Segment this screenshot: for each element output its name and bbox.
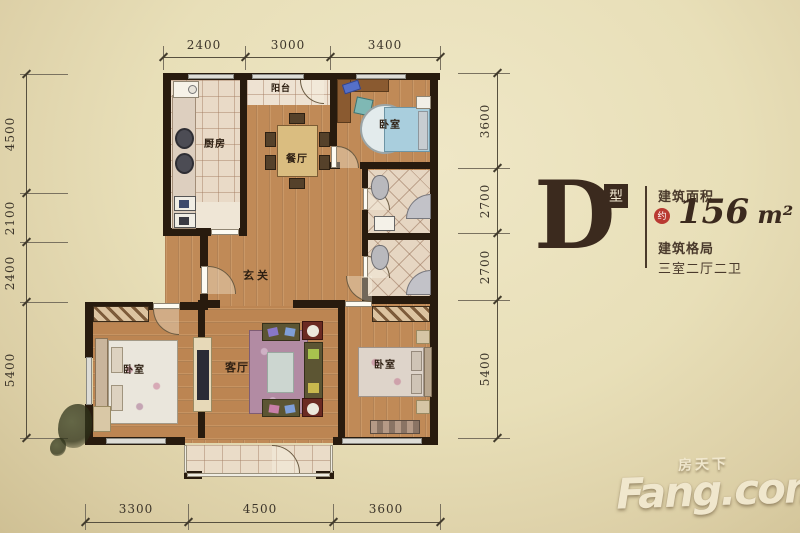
dim-label-left-2: 2100 (3, 196, 17, 240)
bed-pillow (111, 385, 123, 411)
kitchen-appliance (174, 213, 196, 228)
bed-pillow (411, 351, 422, 371)
wall-bedroomBR-left (338, 300, 345, 438)
dim-label-left-1: 4500 (3, 112, 17, 156)
dim-ext (188, 504, 189, 530)
bed-pillows (418, 111, 428, 150)
tv-stand (193, 337, 212, 412)
toilet-bath2 (371, 245, 389, 270)
dim-line-left (26, 74, 27, 438)
entrance-door (201, 266, 208, 294)
dim-label-bottom-1: 3300 (114, 502, 158, 516)
appliance-panel (179, 217, 189, 225)
room-label-balcony-top: 阳台 (271, 81, 291, 94)
toilet-bath1 (371, 175, 389, 200)
bed-bedroomBL (108, 340, 178, 424)
bed-headboard-BR (424, 347, 432, 397)
balcony-side-wall (330, 445, 333, 473)
dim-label-left-3: 2400 (3, 251, 17, 295)
sofa (304, 342, 323, 402)
area-unit: m² (749, 200, 793, 229)
tv (197, 350, 209, 400)
layout-value: 三室二厅二卫 (658, 258, 742, 277)
floor-balcony-bottom (186, 445, 332, 475)
wall-bath-divider (362, 233, 437, 240)
room-label-kitchen: 厨房 (204, 135, 226, 150)
side-table-bottom (302, 398, 323, 417)
dim-ext (458, 73, 510, 74)
wall-bedroomTR-left (330, 73, 337, 146)
dim-line-top (163, 57, 440, 58)
wall-bath2-left-a (362, 240, 368, 256)
dining-chair (289, 113, 305, 124)
dim-line-right (497, 73, 498, 438)
room-label-hallway: 玄关 (243, 267, 271, 283)
room-label-bedroomBR: 卧室 (374, 356, 396, 371)
dim-label-top-2: 3000 (266, 38, 310, 52)
approx-badge: 约 (654, 208, 670, 224)
wall-hall-living-right (293, 300, 340, 308)
pillow (284, 327, 295, 337)
kitchen-door (211, 229, 239, 235)
rug-center (267, 352, 294, 393)
lamp (307, 325, 319, 337)
window-bedroomBL-left (86, 357, 92, 405)
dining-chair (319, 132, 330, 147)
info-divider (645, 186, 647, 268)
wall-bath1-left-a (362, 169, 368, 188)
bed-pillow (411, 374, 422, 394)
wall-hall-left-upper (200, 228, 208, 268)
closet-bedroomBR (372, 306, 430, 322)
floor-plan-image: 2400 3000 3400 4500 2100 2400 5400 3600 … (0, 0, 800, 533)
dim-label-right-4: 5400 (478, 347, 492, 391)
stove-burner (175, 153, 194, 174)
room-label-bedroomBL: 卧室 (123, 361, 145, 376)
appliance-panel (179, 200, 189, 208)
plant-decoration (50, 438, 66, 456)
dim-label-top-3: 3400 (363, 38, 407, 52)
area-number: 156 (678, 192, 749, 232)
layout-label: 建筑格局 (658, 238, 714, 257)
dim-label-bottom-2: 4500 (238, 502, 282, 516)
room-label-dining: 餐厅 (286, 150, 308, 165)
sink-basin (188, 85, 197, 94)
dim-ext (458, 300, 510, 301)
wall-outer-left-upper (85, 302, 93, 358)
bench-bedroomBR (370, 420, 420, 434)
wardrobe-bedroomBL (93, 306, 149, 322)
dim-line-bottom (85, 522, 440, 523)
dim-label-right-3: 2700 (478, 245, 492, 289)
armchair-bottom (262, 399, 300, 417)
dim-label-left-4: 5400 (3, 348, 17, 392)
side-table-top (302, 321, 323, 340)
dining-chair (265, 132, 276, 147)
dim-ext (458, 233, 510, 234)
unit-type-badge: 型 (604, 184, 628, 208)
kitchen-sink-unit (173, 81, 199, 98)
dim-label-top-1: 2400 (182, 38, 226, 52)
balcony-front-glazing (187, 473, 330, 477)
kitchen-appliance (174, 196, 196, 211)
wall-bath2-bottom (362, 296, 437, 304)
armchair-top (262, 323, 300, 341)
nightstand (416, 330, 430, 344)
dim-label-right-2: 2700 (478, 179, 492, 223)
dim-ext (85, 504, 86, 530)
dining-chair (265, 155, 276, 170)
room-label-living: 客厅 (225, 359, 249, 375)
bed-bedroomBR (358, 347, 424, 397)
dim-ext (458, 168, 510, 169)
pillow (267, 327, 278, 337)
balcony-side-wall (184, 445, 187, 473)
fang-watermark-logo: Fang.com (615, 462, 800, 518)
dim-ext (440, 504, 441, 530)
nightstand (416, 400, 430, 414)
wall-kitchen-right (240, 73, 247, 236)
room-label-bedroomTR: 卧室 (379, 116, 401, 131)
pillow (268, 404, 279, 413)
bedroomBR-door (345, 301, 372, 307)
fang-watermark: 房天下 Fang.com (616, 452, 800, 532)
nightstand (416, 96, 431, 109)
wall-kitchen-left (163, 73, 171, 235)
stove-burner (175, 128, 194, 149)
pillow (284, 404, 295, 414)
area-value: 156 m² (678, 192, 793, 232)
dim-label-right-1: 3600 (478, 99, 492, 143)
dim-ext (458, 438, 510, 439)
lamp (307, 403, 319, 415)
dresser-bedroomBL (93, 406, 111, 432)
window-kitchen (188, 74, 234, 79)
window-balcony-top (252, 74, 304, 79)
bed-pillow (111, 347, 123, 373)
sofa-cushion (308, 349, 319, 359)
sofa-cushion (308, 383, 319, 393)
washing-machine (374, 216, 395, 231)
wall-bedroomTR-bottom (360, 162, 437, 169)
dim-label-bottom-3: 3600 (364, 502, 408, 516)
window-bedroomBL-bottom (106, 438, 166, 444)
dining-chair (319, 155, 330, 170)
dim-ext (333, 504, 334, 530)
dining-chair (289, 178, 305, 189)
window-bedroomBR-bottom (342, 438, 422, 444)
